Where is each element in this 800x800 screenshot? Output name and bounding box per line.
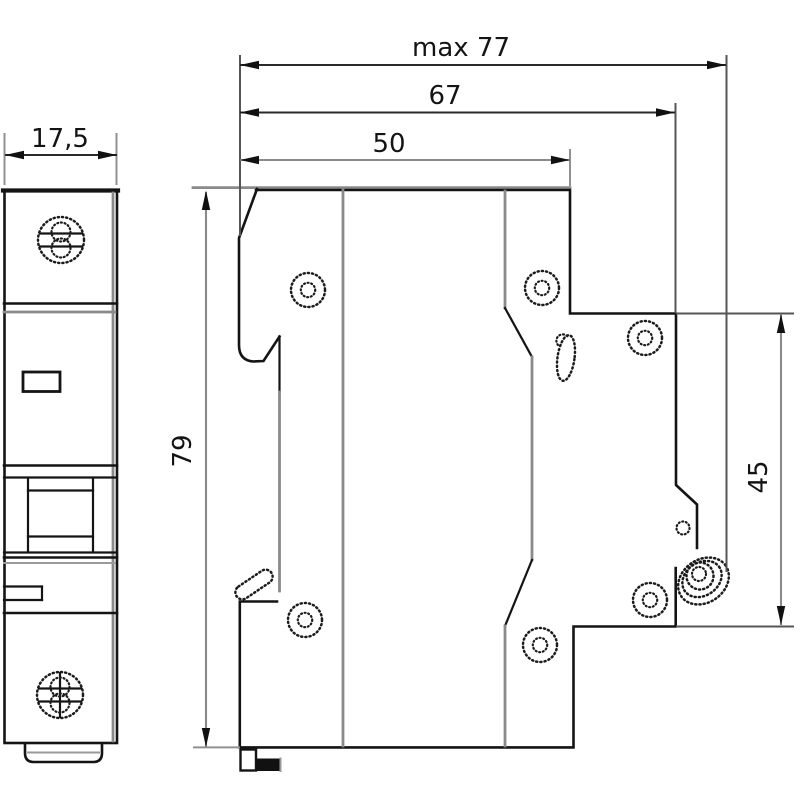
rivet-icon <box>633 583 667 617</box>
dimension-upper-depth: 50 <box>240 129 570 186</box>
oval-slot <box>554 334 577 382</box>
dimension-max-depth: max 77 <box>240 33 727 572</box>
inner-bevel-bottom <box>505 560 532 626</box>
bottom-terminal-screw-icon <box>37 672 83 718</box>
din-clip-bottom <box>241 750 281 772</box>
dimension-front-width: 17,5 <box>5 124 118 185</box>
din-hook <box>239 189 280 362</box>
technical-drawing: 17,5 max 77 67 50 <box>0 0 800 800</box>
dim-label-front-height: 45 <box>744 460 774 493</box>
dim-label-front-width: 17,5 <box>31 124 89 154</box>
dim-label-upper-depth: 50 <box>372 129 405 159</box>
rivet-icon <box>525 271 559 305</box>
drawing-canvas: 17,5 max 77 67 50 <box>0 0 800 800</box>
rivet-icon <box>628 321 662 355</box>
side-outline-lower <box>240 568 676 747</box>
side-outline-upper <box>256 190 697 548</box>
top-terminal-screw-icon <box>38 217 84 263</box>
front-din-tab <box>25 744 102 762</box>
din-clip-release <box>233 567 276 602</box>
toggle-lever <box>28 478 93 552</box>
rivet-icon <box>288 603 322 637</box>
dimension-height: 79 <box>168 191 240 748</box>
inner-bevel-top <box>505 308 532 357</box>
rivet-icon <box>291 273 325 307</box>
rivet-icon <box>523 628 557 662</box>
small-pin-hole <box>677 522 690 535</box>
rivets <box>288 271 667 662</box>
dim-label-body-depth: 67 <box>428 81 461 111</box>
label-window <box>4 587 42 601</box>
dim-label-max-depth: max 77 <box>412 33 510 63</box>
front-view <box>3 190 118 762</box>
terminal-rivet-boss <box>669 548 738 614</box>
side-view <box>193 188 738 771</box>
dimension-body-depth: 67 <box>240 81 676 312</box>
marking-window <box>23 372 60 392</box>
dim-label-height: 79 <box>168 434 198 467</box>
